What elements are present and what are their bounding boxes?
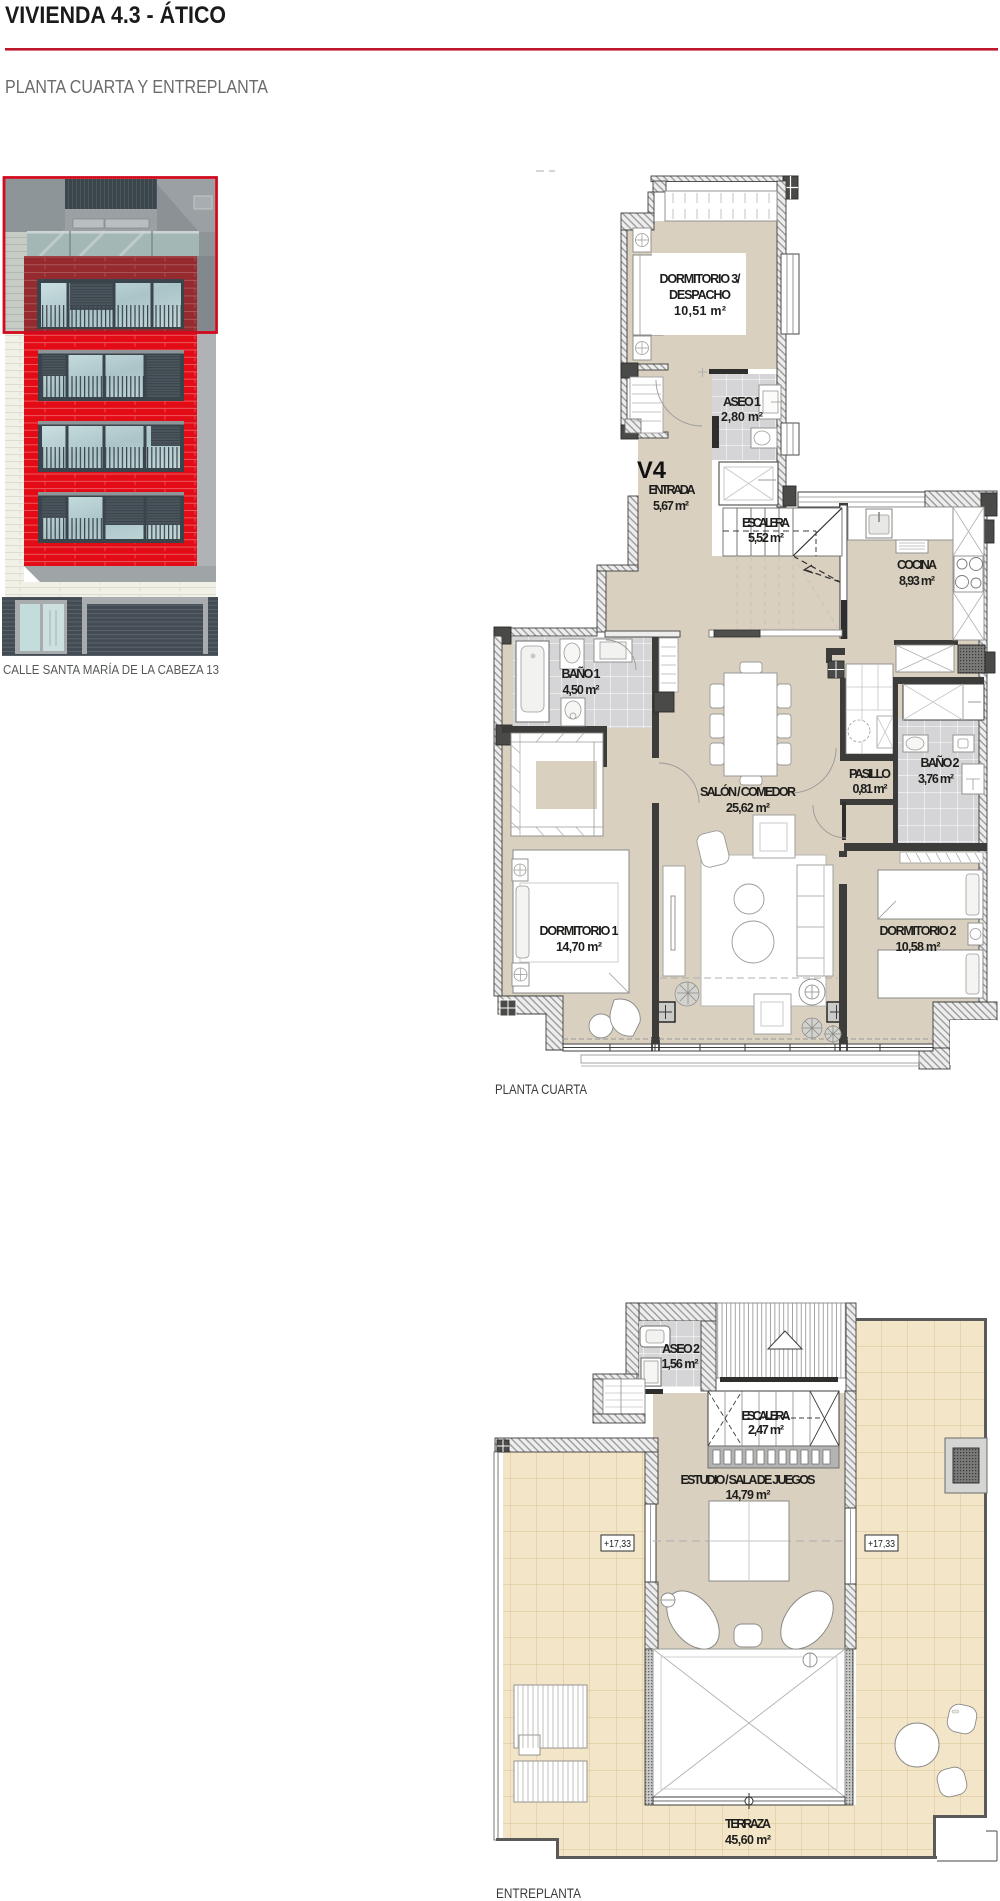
svg-text:SALÓN / COMEDOR: SALÓN / COMEDOR <box>700 784 796 799</box>
svg-text:0,81 m²: 0,81 m² <box>853 782 888 796</box>
svg-text:5,67 m²: 5,67 m² <box>653 499 689 513</box>
svg-text:VIVIENDA 4.3 - ÁTICO: VIVIENDA 4.3 - ÁTICO <box>5 1 226 29</box>
svg-text:25,62 m²: 25,62 m² <box>726 801 770 815</box>
svg-text:BAÑO 1: BAÑO 1 <box>562 666 601 681</box>
svg-text:ASEO 2: ASEO 2 <box>662 1342 700 1356</box>
svg-text:+17,33: +17,33 <box>604 1539 631 1550</box>
svg-text:PLANTA CUARTA: PLANTA CUARTA <box>495 1081 588 1097</box>
svg-text:14,70 m²: 14,70 m² <box>556 940 602 954</box>
svg-text:TERRAZA: TERRAZA <box>725 1817 771 1831</box>
svg-text:+17,33: +17,33 <box>868 1539 895 1550</box>
svg-text:45,60 m²: 45,60 m² <box>725 1833 771 1847</box>
svg-text:CALLE SANTA MARÍA DE LA CABEZA: CALLE SANTA MARÍA DE LA CABEZA 13 <box>3 662 219 677</box>
svg-text:3,76 m²: 3,76 m² <box>918 772 954 786</box>
svg-text:PLANTA CUARTA Y ENTREPLANTA: PLANTA CUARTA Y ENTREPLANTA <box>5 77 268 97</box>
svg-text:PASILLO: PASILLO <box>849 767 891 781</box>
svg-text:10,58 m²: 10,58 m² <box>896 940 941 954</box>
svg-text:DORMITORIO 2: DORMITORIO 2 <box>880 924 957 938</box>
svg-text:DORMITORIO 1: DORMITORIO 1 <box>540 924 619 938</box>
svg-text:ASEO 1: ASEO 1 <box>723 395 761 409</box>
svg-text:1,56 m²: 1,56 m² <box>662 1357 699 1371</box>
svg-text:5,52 m²: 5,52 m² <box>748 531 784 545</box>
svg-text:14,79 m²: 14,79 m² <box>726 1488 771 1502</box>
svg-text:ENTRADA: ENTRADA <box>649 483 696 497</box>
svg-text:BAÑO 2: BAÑO 2 <box>921 755 960 770</box>
svg-text:2,47 m²: 2,47 m² <box>748 1423 784 1437</box>
svg-text:ENTREPLANTA: ENTREPLANTA <box>496 1885 582 1901</box>
svg-text:2,80 m²: 2,80 m² <box>721 410 763 424</box>
svg-text:V4: V4 <box>637 457 667 484</box>
svg-text:ESCALERA: ESCALERA <box>742 516 790 530</box>
svg-text:DESPACHO: DESPACHO <box>669 288 731 302</box>
svg-text:4,50 m²: 4,50 m² <box>563 683 600 697</box>
svg-text:DORMITORIO 3/: DORMITORIO 3/ <box>660 272 742 286</box>
svg-text:ESCALERA: ESCALERA <box>742 1409 791 1423</box>
svg-text:10,51 m²: 10,51 m² <box>674 304 726 318</box>
svg-text:8,93 m²: 8,93 m² <box>899 574 935 588</box>
svg-text:COCINA: COCINA <box>897 558 937 572</box>
svg-text:ESTUDIO / SALA DE JUEGOS: ESTUDIO / SALA DE JUEGOS <box>681 1473 816 1487</box>
